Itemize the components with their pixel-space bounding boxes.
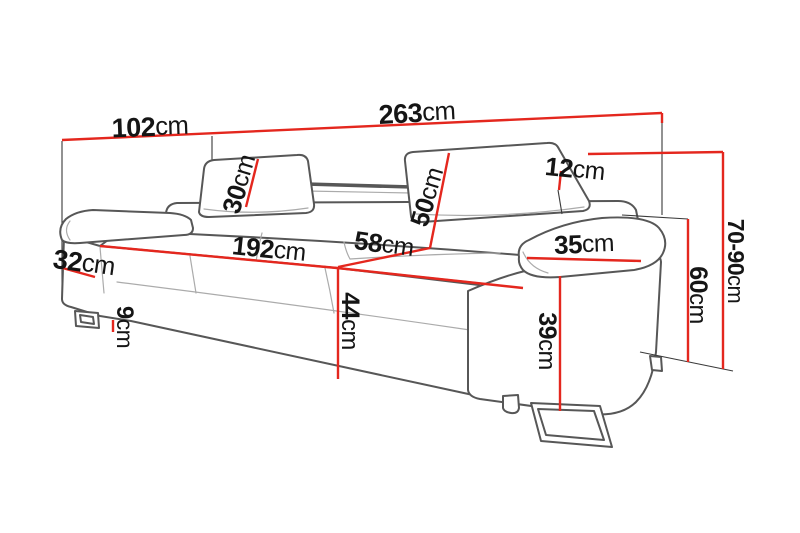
dim-label-12cm: 12cm — [544, 151, 607, 187]
dim-label-9cm: 9cm — [112, 306, 139, 348]
headrest-bar — [306, 184, 412, 187]
dim-label-44cm: 44cm — [336, 292, 364, 349]
center-leg — [503, 395, 519, 413]
headrest-bar-shade — [306, 191, 411, 193]
right-leg-inner — [538, 409, 604, 440]
diagram-canvas: 102cm 263cm 12cm 30cm 50cm 70-90cm 60cm … — [0, 0, 800, 533]
dim-label-39cm: 39cm — [533, 312, 561, 369]
dim-tick-70-90cm — [588, 152, 723, 154]
dim-label-60cm: 60cm — [684, 266, 712, 323]
dim-label-35cm: 35cm — [554, 228, 615, 260]
dim-label-70-90cm: 70-90cm — [723, 219, 749, 303]
dim-label-102cm: 102cm — [111, 111, 189, 144]
left-leg-inner — [80, 315, 94, 324]
dim-label-263cm: 263cm — [378, 96, 456, 130]
sofa-dimension-diagram: 102cm 263cm 12cm 30cm 50cm 70-90cm 60cm … — [0, 0, 800, 533]
back-right-leg — [650, 356, 662, 371]
